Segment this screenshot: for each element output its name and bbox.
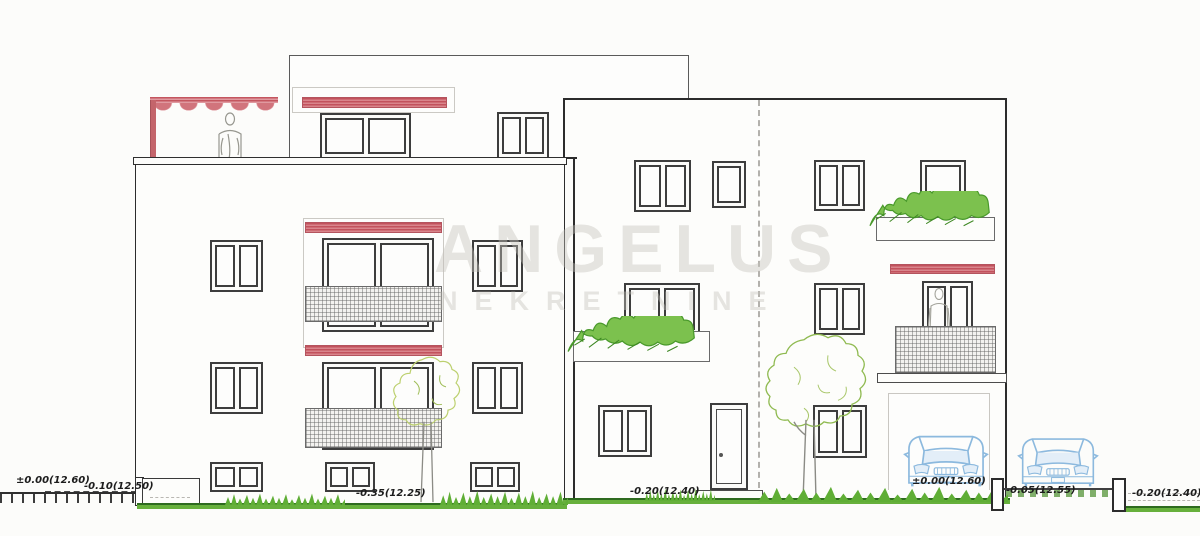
awning-post [150,100,156,158]
window-pane [627,410,647,452]
elevation-label: ±0.00(12.60) [16,475,90,486]
window-pane [239,245,259,287]
window [210,240,263,292]
right-building-ledge [563,98,577,159]
elevation-drawing: ±0.00(12.60) -0.10(12.50) -0.35(12.25) -… [0,0,1200,536]
window-pane [477,367,496,409]
window-pane [842,288,861,330]
elevation-label: ±0.00(12.60) [912,476,986,487]
tree [742,328,882,504]
penthouse-sliding-door [320,113,411,159]
vine-planter [566,316,712,364]
ground-line [1126,506,1200,512]
window-pane [639,165,661,207]
balcony-railing [305,286,442,322]
door-pane [525,117,544,154]
window-pane [665,165,687,207]
retaining-post [1112,478,1126,512]
watermark-primary: ANGELUS [434,210,843,288]
door-pane [325,118,364,154]
window-pane [352,467,370,487]
window [210,462,263,492]
window-pane [717,166,741,203]
retaining-post [991,478,1004,511]
door-panel [716,409,742,484]
tree [378,352,478,507]
person-figure [213,112,247,159]
vine-planter [868,191,1006,238]
window [814,160,865,211]
balcony-railing [895,326,996,373]
window-pane [215,245,235,287]
window [634,160,691,212]
window [712,161,746,208]
window-pane [819,288,838,330]
level-dashed-line [1128,500,1200,501]
elevation-label: -0.20(12.40) [1132,488,1200,499]
door-knob [719,453,723,457]
car [1017,427,1099,488]
window [598,405,652,457]
window-pane [603,410,623,452]
window-pane [215,467,235,487]
ground-hatch [0,492,137,503]
door-pane [502,117,521,154]
watermark-secondary: NEKRETNINE [438,286,784,317]
grass [225,492,345,505]
balcony-awning-band [890,264,995,274]
window-pane [330,467,348,487]
window-pane [819,165,838,206]
window-pane [842,165,861,206]
penthouse-door [497,112,549,159]
window-pane [239,367,259,409]
door-pane [368,118,407,154]
window-pane [239,467,259,487]
balcony-slab [877,373,1007,383]
penthouse-awning-band [302,97,447,108]
grass [758,485,1008,502]
grass [440,489,568,505]
window-pane [500,367,519,409]
window [210,362,263,414]
window-pane [497,467,515,487]
elevation-label: -0.10(12.50) [84,481,154,492]
window [472,362,523,414]
planter-dashed-line [150,497,190,498]
elevation-label: -0.35(12.25) [356,488,426,499]
elevation-label: -0.20(12.40) [630,486,700,497]
window-pane [215,367,235,409]
awning-band [305,222,442,233]
elevation-label: -0.05(12.55) [1006,485,1076,496]
